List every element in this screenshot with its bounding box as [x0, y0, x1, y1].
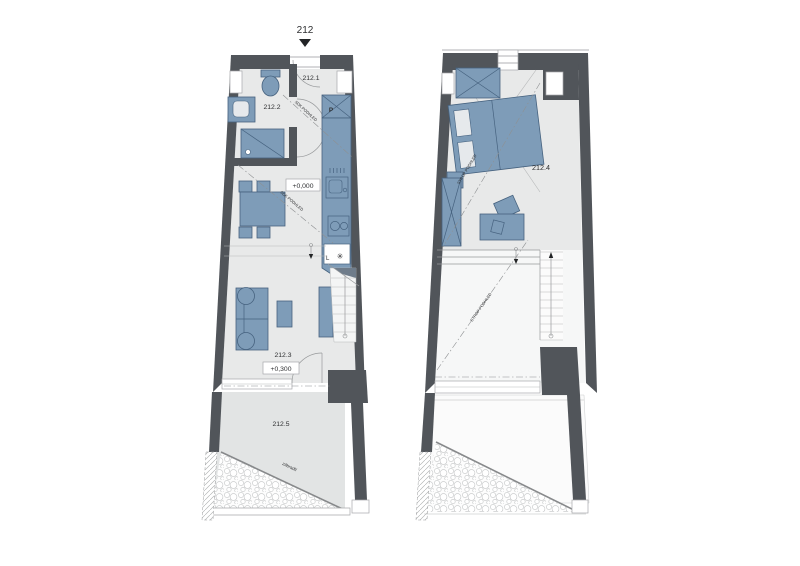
fridge-snowflake-icon: ✳: [337, 252, 344, 261]
entrance-marker: 212: [297, 25, 314, 47]
coffee-table: [277, 301, 292, 327]
room-label-terrace: 212.5: [272, 421, 289, 428]
pillow: [454, 109, 472, 137]
room-label-living: 212.3: [274, 352, 291, 359]
double-bed: [448, 95, 544, 175]
window-right: [337, 71, 352, 93]
dining-chair: [239, 181, 252, 192]
floorplan-page: 212: [0, 0, 800, 566]
upper-floor-plan: STROP PODHLED STROP PODHLED: [416, 50, 597, 520]
dining-chair: [257, 181, 270, 192]
wardrobe-side: [442, 178, 461, 246]
skylight: [498, 50, 518, 70]
wall-sill: [572, 500, 588, 513]
sofa-cushion: [238, 288, 255, 305]
staircase-upper: [540, 250, 563, 340]
floorplan-drawing: 212: [0, 0, 800, 566]
shower-drain: [246, 150, 251, 155]
sofa-cushion: [238, 333, 255, 350]
lower-floor-plan: P ✳ L: [202, 55, 369, 520]
washbasin-bowl: [233, 101, 249, 117]
toilet: [262, 76, 279, 96]
dining-table: [240, 192, 285, 226]
level-label-living: +0,300: [271, 366, 292, 373]
window-left: [230, 71, 242, 93]
entrance-arrow-icon: [299, 39, 311, 47]
dining-chair: [239, 227, 252, 238]
tv-bench: [319, 287, 333, 337]
room-label-bedroom: 212.4: [532, 163, 550, 172]
washer-closet: P: [322, 95, 351, 118]
wall-sill: [352, 500, 369, 513]
dining-chair: [257, 227, 270, 238]
room-label-bathroom: 212.2: [263, 104, 280, 111]
window-right: [546, 72, 563, 95]
terrace-edge-sill: [206, 508, 350, 515]
room-label-hall: 212.1: [302, 75, 319, 82]
level-label-entry: +0,000: [293, 183, 314, 190]
wardrobe-top: [456, 68, 500, 98]
window-left: [442, 73, 454, 94]
desk: [480, 214, 524, 240]
washer-label: P: [329, 107, 333, 114]
unit-number-label: 212: [297, 25, 314, 36]
